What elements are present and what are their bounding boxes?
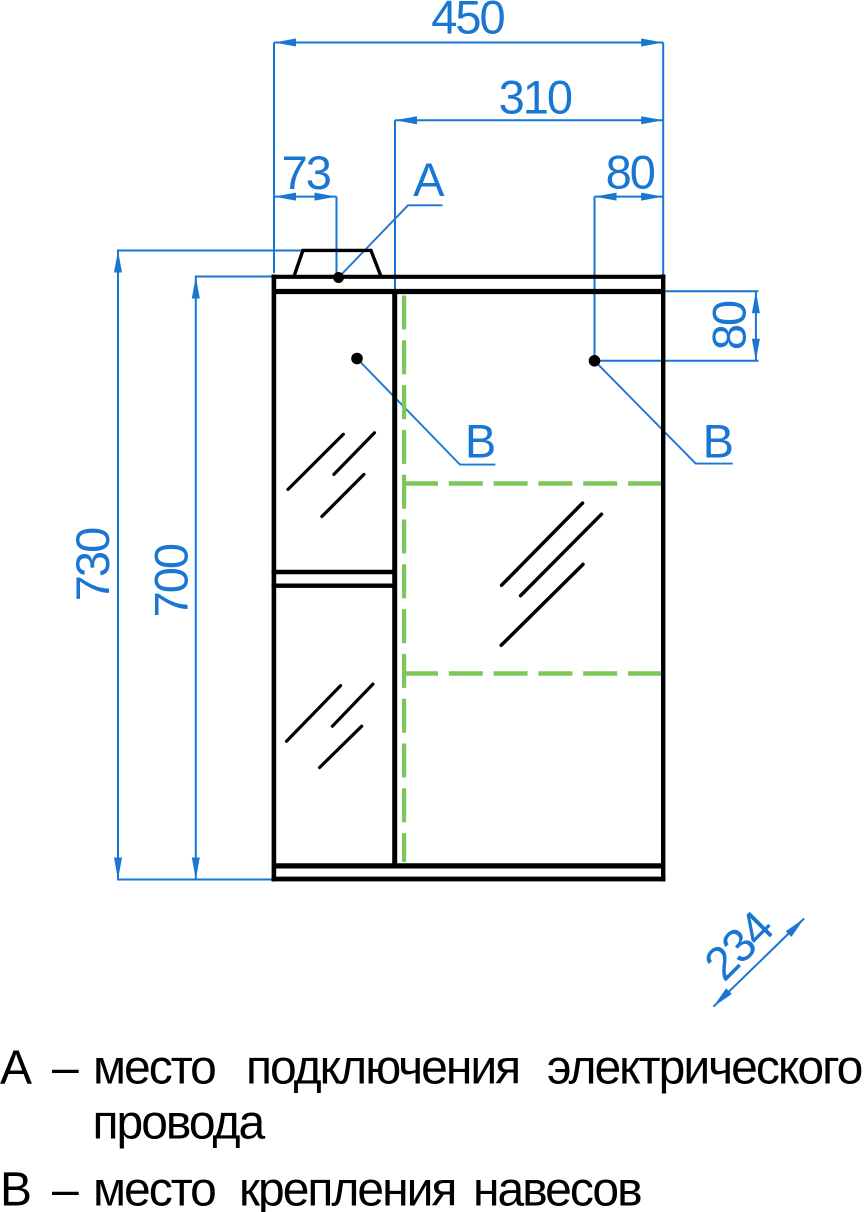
svg-text:провода: провода xyxy=(93,1097,266,1150)
svg-text:80: 80 xyxy=(606,146,655,199)
svg-text:В–местокреплениянавесов: В–местокреплениянавесов xyxy=(0,1164,641,1212)
svg-text:80: 80 xyxy=(703,301,756,350)
svg-text:450: 450 xyxy=(431,0,504,44)
svg-text:700: 700 xyxy=(145,544,198,617)
svg-text:310: 310 xyxy=(499,71,572,124)
svg-text:А–местоподключенияэлектрическо: А–местоподключенияэлектрического xyxy=(0,1041,862,1094)
svg-text:B: B xyxy=(703,414,732,467)
svg-text:B: B xyxy=(465,414,494,467)
svg-text:73: 73 xyxy=(282,146,331,199)
svg-text:730: 730 xyxy=(66,528,119,601)
svg-text:A: A xyxy=(413,153,445,206)
